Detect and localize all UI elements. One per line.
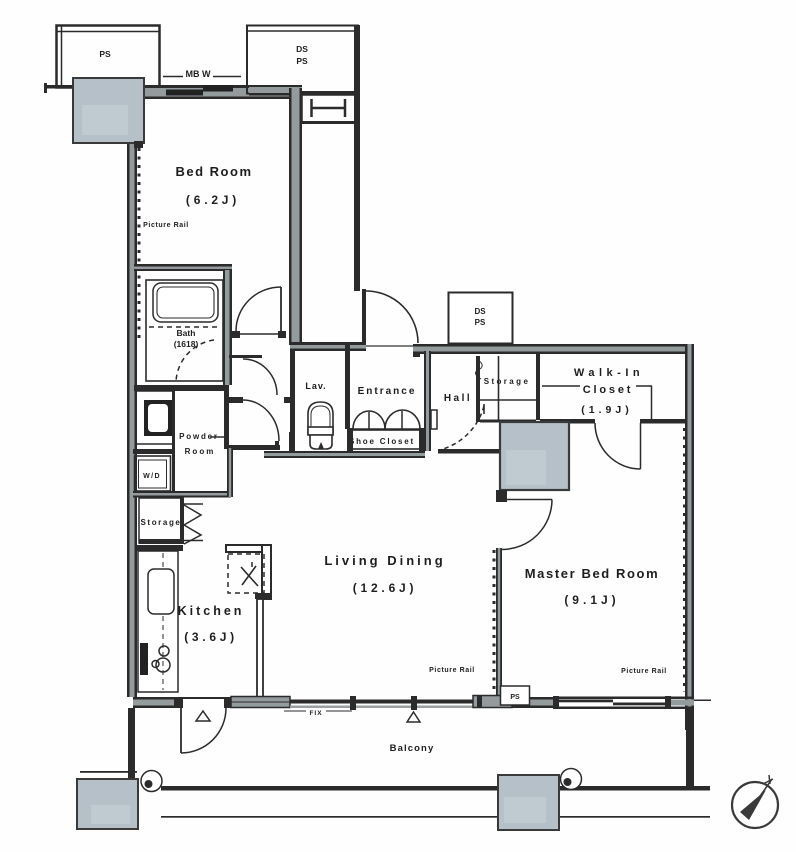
svg-text:Balcony: Balcony (390, 743, 435, 754)
svg-text:Room: Room (185, 447, 216, 456)
svg-text:PS: PS (510, 694, 520, 701)
svg-text:(3.6J): (3.6J) (184, 630, 238, 644)
svg-text:Living Dining: Living Dining (324, 553, 445, 568)
svg-text:Closet: Closet (583, 384, 633, 396)
svg-text:Storage: Storage (484, 377, 531, 386)
svg-text:Entrance: Entrance (358, 386, 417, 397)
svg-text:Shoe Closet: Shoe Closet (349, 437, 415, 446)
svg-text:(9.1J): (9.1J) (564, 593, 619, 607)
svg-text:Picture Rail: Picture Rail (621, 668, 667, 675)
svg-text:Hall: Hall (444, 393, 472, 404)
svg-text:MB W: MB W (186, 69, 211, 79)
svg-text:FIX: FIX (309, 710, 322, 717)
svg-text:Walk-In: Walk-In (574, 367, 644, 379)
svg-text:(12.6J): (12.6J) (353, 581, 418, 595)
svg-text:W/D: W/D (143, 473, 161, 480)
svg-text:PS: PS (475, 318, 486, 327)
svg-text:Master Bed Room: Master Bed Room (525, 566, 660, 581)
svg-text:(6.2J): (6.2J) (186, 193, 240, 207)
svg-text:Kitchen: Kitchen (178, 604, 245, 618)
svg-text:DS: DS (296, 44, 308, 54)
svg-text:DS: DS (474, 307, 486, 316)
svg-text:Picture Rail: Picture Rail (143, 222, 189, 229)
svg-text:PS: PS (99, 49, 111, 59)
svg-text:PS: PS (296, 56, 308, 66)
svg-text:(1.9J): (1.9J) (581, 404, 632, 416)
svg-text:Lav.: Lav. (305, 381, 326, 391)
svg-text:Bed Room: Bed Room (176, 164, 253, 179)
svg-text:Bath: Bath (177, 328, 196, 338)
svg-text:Storage: Storage (141, 518, 182, 527)
svg-text:Picture Rail: Picture Rail (429, 667, 475, 674)
